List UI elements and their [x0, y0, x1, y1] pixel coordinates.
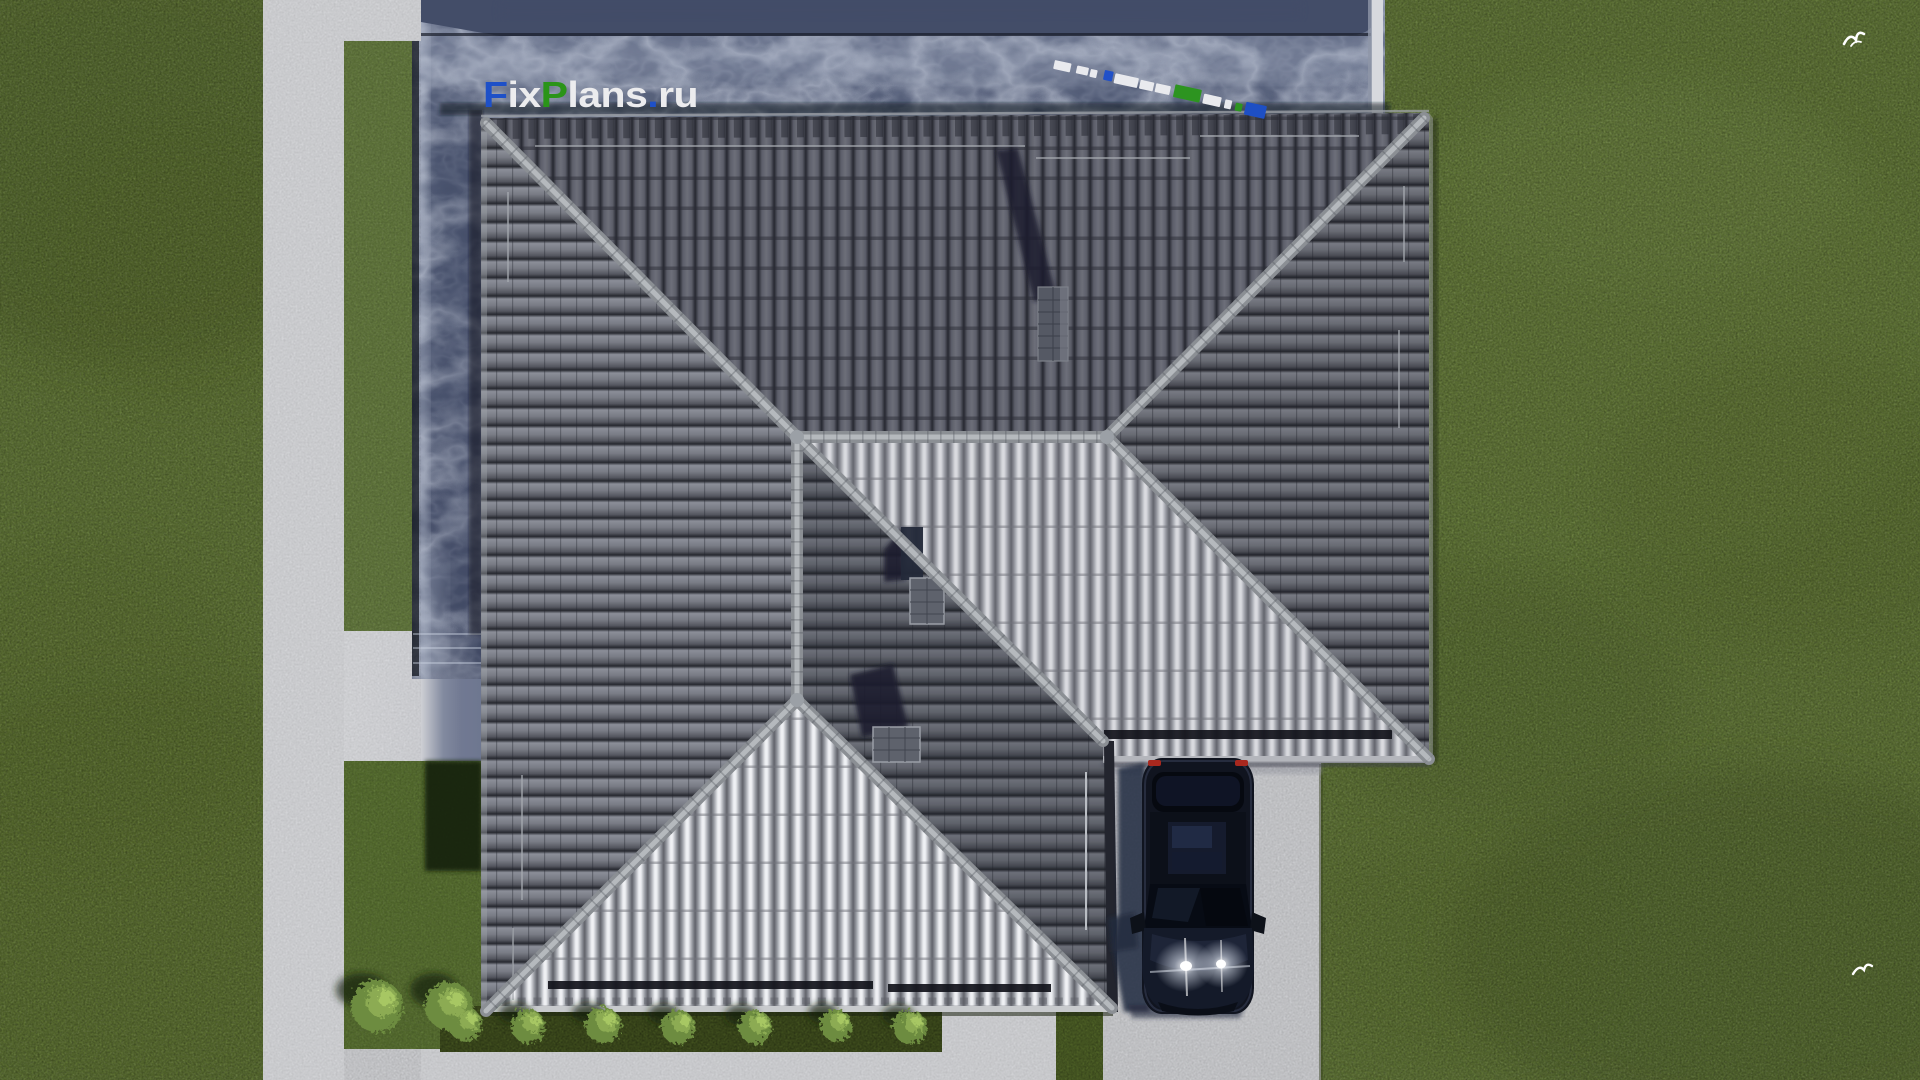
svg-text:FixPlans.ru: FixPlans.ru: [483, 74, 698, 115]
